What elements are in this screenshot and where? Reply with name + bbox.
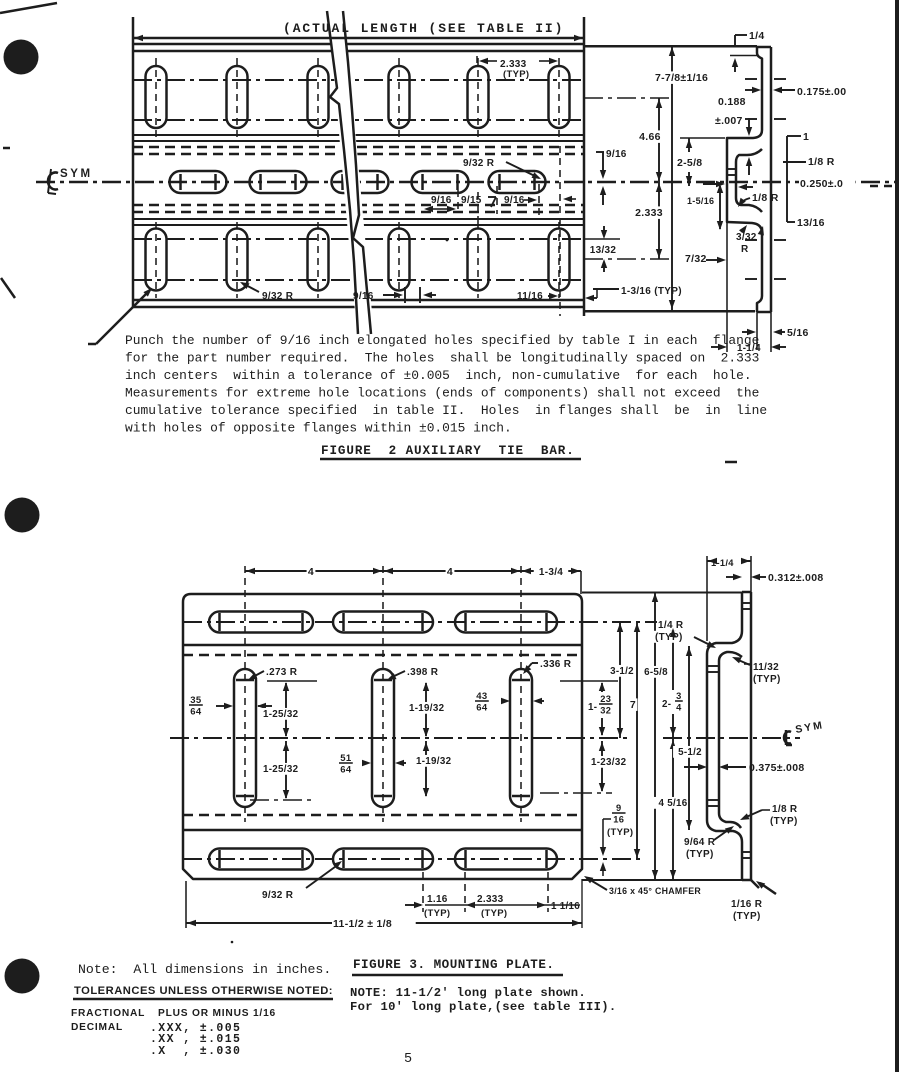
svg-text:FRACTIONAL: FRACTIONAL bbox=[71, 1008, 145, 1019]
svg-text:3/16 x 45° CHAMFER: 3/16 x 45° CHAMFER bbox=[609, 886, 701, 896]
svg-text:9/32 R: 9/32 R bbox=[262, 890, 294, 901]
svg-text:Measurements for extreme hole: Measurements for extreme hole locations … bbox=[125, 386, 759, 401]
svg-text:Note: All dimensions in inche: Note: All dimensions in inches. bbox=[78, 962, 331, 977]
svg-text:9/64 R: 9/64 R bbox=[684, 837, 716, 848]
svg-text:2-: 2- bbox=[662, 699, 671, 710]
svg-text:(TYP): (TYP) bbox=[753, 674, 781, 685]
svg-text:with holes of opposite flanges: with holes of opposite flanges within ±0… bbox=[125, 421, 512, 436]
svg-text:1/8 R: 1/8 R bbox=[808, 156, 835, 168]
svg-text:1-: 1- bbox=[588, 702, 597, 713]
svg-text:7/32: 7/32 bbox=[685, 253, 707, 265]
svg-text:9/32 R: 9/32 R bbox=[262, 291, 294, 302]
svg-text:1-25/32: 1-25/32 bbox=[263, 764, 299, 775]
svg-text:4 5/16: 4 5/16 bbox=[658, 798, 687, 809]
svg-text:1 1/16: 1 1/16 bbox=[551, 901, 580, 912]
svg-text:R: R bbox=[741, 244, 749, 255]
svg-text:32: 32 bbox=[600, 705, 611, 715]
svg-text:(TYP): (TYP) bbox=[503, 69, 529, 80]
svg-text:13/16: 13/16 bbox=[797, 217, 825, 229]
svg-text:4: 4 bbox=[308, 566, 314, 578]
svg-text:4: 4 bbox=[676, 702, 682, 712]
svg-text:TOLERANCES UNLESS OTHERWISE NO: TOLERANCES UNLESS OTHERWISE NOTED: bbox=[74, 985, 333, 997]
svg-text:2.333: 2.333 bbox=[635, 207, 663, 219]
svg-text:3-1/2: 3-1/2 bbox=[610, 666, 634, 677]
svg-text:(TYP): (TYP) bbox=[686, 849, 714, 860]
svg-text:2-5/8: 2-5/8 bbox=[677, 157, 702, 169]
svg-text:PLUS OR MINUS 1/16: PLUS OR MINUS 1/16 bbox=[158, 1008, 276, 1019]
svg-text:±.007: ±.007 bbox=[715, 115, 743, 127]
svg-text:(TYP): (TYP) bbox=[770, 816, 798, 827]
svg-text:1/4: 1/4 bbox=[749, 30, 765, 42]
svg-text:9/32 R: 9/32 R bbox=[463, 158, 495, 169]
svg-text:.273 R: .273 R bbox=[266, 667, 298, 678]
svg-text:for the part number required.: for the part number required. The holes … bbox=[125, 351, 759, 366]
svg-text:11/32: 11/32 bbox=[753, 662, 779, 673]
svg-text:0.250±.0: 0.250±.0 bbox=[800, 178, 843, 190]
svg-text:1/8 R: 1/8 R bbox=[772, 804, 798, 815]
svg-text:9: 9 bbox=[616, 803, 621, 813]
svg-text:(ACTUAL LENGTH (SEE TABLE II): (ACTUAL LENGTH (SEE TABLE II) bbox=[283, 21, 564, 36]
svg-text:SYM: SYM bbox=[60, 168, 93, 180]
svg-text:0.175±.00: 0.175±.00 bbox=[797, 86, 846, 98]
svg-text:16: 16 bbox=[613, 814, 624, 824]
svg-text:1-25/32: 1-25/32 bbox=[263, 709, 299, 720]
svg-text:NOTE: 11-1/2' long plate shown: NOTE: 11-1/2' long plate shown. bbox=[350, 986, 586, 1000]
svg-text:(TYP): (TYP) bbox=[655, 632, 683, 643]
svg-text:9/16: 9/16 bbox=[606, 149, 627, 160]
svg-text:1-19/32: 1-19/32 bbox=[416, 756, 452, 767]
svg-text:DECIMAL: DECIMAL bbox=[71, 1022, 123, 1033]
svg-text:9/16: 9/16 bbox=[353, 291, 374, 302]
svg-text:inch centers within a toleran: inch centers within a tolerance of ±0.00… bbox=[125, 368, 752, 383]
svg-text:5-1/2: 5-1/2 bbox=[678, 747, 702, 758]
svg-text:3/32: 3/32 bbox=[736, 232, 757, 243]
svg-text:(TYP): (TYP) bbox=[424, 908, 450, 919]
svg-text:5/16: 5/16 bbox=[787, 327, 809, 339]
svg-text:(TYP): (TYP) bbox=[733, 911, 761, 922]
svg-text:4.66: 4.66 bbox=[639, 131, 661, 143]
svg-text:.336 R: .336 R bbox=[540, 659, 572, 670]
svg-text:23: 23 bbox=[600, 694, 611, 704]
svg-text:For 10' long plate,(see table: For 10' long plate,(see table III). bbox=[350, 1000, 616, 1014]
svg-text:7-7/8±1/16: 7-7/8±1/16 bbox=[655, 72, 708, 84]
svg-text:64: 64 bbox=[190, 707, 202, 718]
svg-text:9/16: 9/16 bbox=[431, 195, 452, 206]
svg-text:64: 64 bbox=[476, 703, 488, 714]
svg-text:1: 1 bbox=[803, 131, 809, 143]
svg-text:1-23/32: 1-23/32 bbox=[591, 757, 627, 768]
svg-text:FIGURE 2 AUXILIARY TIE BAR.: FIGURE 2 AUXILIARY TIE BAR. bbox=[321, 444, 575, 458]
svg-text:64: 64 bbox=[340, 765, 352, 776]
svg-text:5: 5 bbox=[404, 1052, 412, 1067]
svg-text:1-19/32: 1-19/32 bbox=[409, 703, 445, 714]
svg-text:(TYP): (TYP) bbox=[481, 908, 507, 919]
svg-text:6-5/8: 6-5/8 bbox=[644, 667, 668, 678]
svg-text:.398 R: .398 R bbox=[407, 667, 439, 678]
svg-text:(TYP): (TYP) bbox=[607, 827, 633, 838]
svg-text:1.16: 1.16 bbox=[427, 894, 448, 905]
svg-text:cumulative tolerance specified: cumulative tolerance specified in table … bbox=[125, 403, 767, 418]
svg-text:13/32: 13/32 bbox=[590, 245, 617, 256]
svg-text:1/4 R: 1/4 R bbox=[658, 620, 684, 631]
svg-text:4: 4 bbox=[447, 566, 453, 578]
svg-text:1-1/4: 1-1/4 bbox=[711, 558, 734, 568]
svg-text:1-3/4: 1-3/4 bbox=[539, 567, 563, 578]
svg-text:9/15: 9/15 bbox=[461, 195, 482, 206]
svg-text:11/16: 11/16 bbox=[517, 291, 543, 302]
svg-text:1/16 R: 1/16 R bbox=[731, 899, 763, 910]
svg-text:11-1/2 ± 1/8: 11-1/2 ± 1/8 bbox=[333, 918, 392, 930]
svg-text:1/8 R: 1/8 R bbox=[752, 192, 779, 204]
svg-text:0.188: 0.188 bbox=[718, 96, 746, 108]
svg-text:.X , ±.030: .X , ±.030 bbox=[150, 1045, 241, 1058]
svg-text:3: 3 bbox=[676, 691, 681, 701]
svg-text:0.312±.008: 0.312±.008 bbox=[768, 572, 823, 584]
svg-text:Punch the number of 9/16 inch: Punch the number of 9/16 inch elongated … bbox=[125, 333, 759, 348]
svg-text:9/16: 9/16 bbox=[504, 195, 525, 206]
svg-text:1-5/16: 1-5/16 bbox=[687, 196, 714, 206]
svg-text:FIGURE 3. MOUNTING PLATE.: FIGURE 3. MOUNTING PLATE. bbox=[353, 958, 554, 972]
svg-text:0.375±.008: 0.375±.008 bbox=[749, 762, 804, 774]
svg-text:7: 7 bbox=[630, 699, 636, 711]
svg-text:2.333: 2.333 bbox=[477, 894, 504, 905]
